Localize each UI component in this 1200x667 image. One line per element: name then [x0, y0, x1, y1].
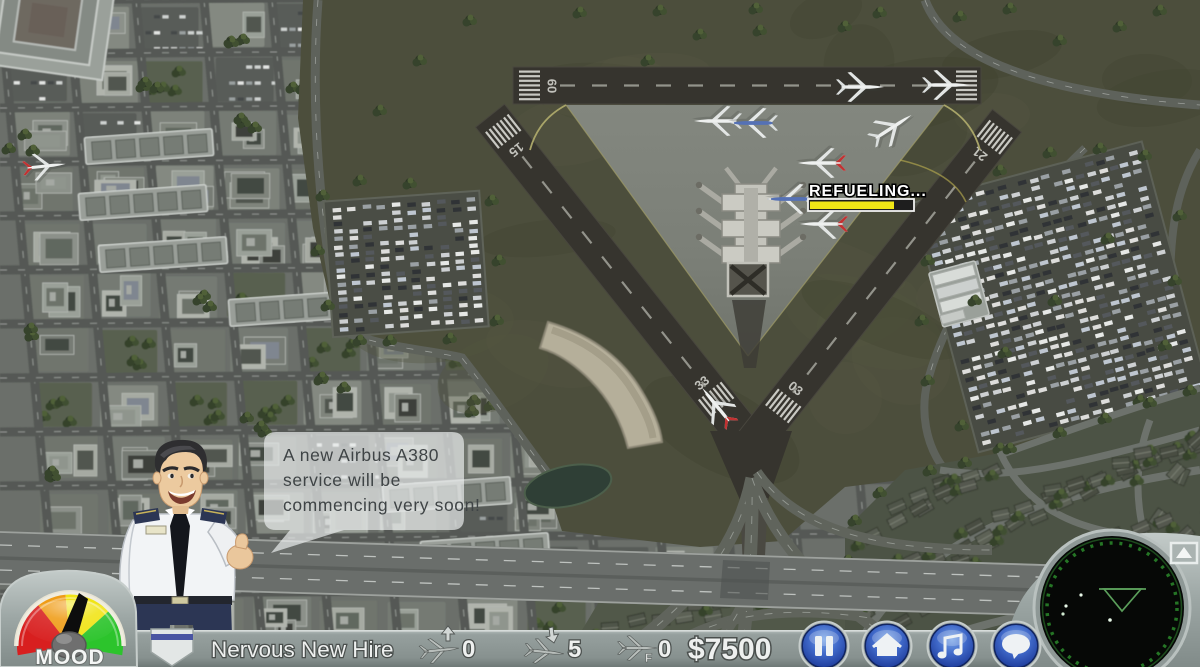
- svg-text:60: 60: [545, 79, 560, 93]
- svg-text:F: F: [645, 651, 652, 665]
- svg-text:$7500: $7500: [688, 633, 771, 666]
- svg-text:A new Airbus A380: A new Airbus A380: [283, 445, 439, 465]
- svg-text:service will be: service will be: [283, 470, 401, 490]
- svg-text:0: 0: [462, 636, 475, 663]
- svg-text:0: 0: [658, 636, 671, 663]
- svg-text:5: 5: [568, 636, 581, 663]
- svg-text:MOOD: MOOD: [35, 646, 104, 667]
- svg-text:REFUELING...: REFUELING...: [809, 183, 927, 200]
- svg-text:commencing very soon!: commencing very soon!: [283, 495, 480, 515]
- svg-text:Nervous New Hire: Nervous New Hire: [211, 637, 394, 662]
